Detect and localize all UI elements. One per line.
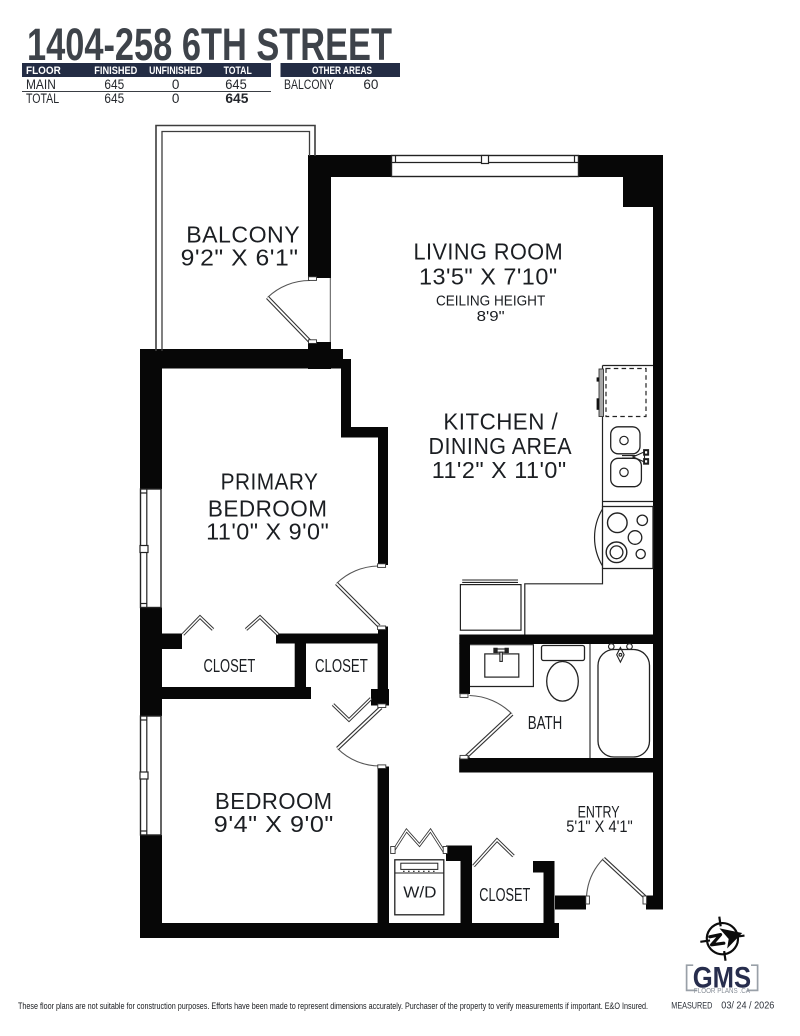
svg-text:645: 645	[104, 77, 124, 92]
svg-text:W/D: W/D	[403, 885, 436, 902]
svg-text:11'0" X 9'0": 11'0" X 9'0"	[206, 519, 329, 545]
svg-text:8'9": 8'9"	[477, 309, 505, 325]
svg-text:CLOSET: CLOSET	[315, 655, 368, 676]
svg-text:MEASURED: MEASURED	[671, 1001, 712, 1012]
svg-text:These floor plans are not suit: These floor plans are not suitable for c…	[18, 1001, 648, 1011]
svg-text:TOTAL: TOTAL	[26, 91, 59, 106]
svg-text:DINING AREA: DINING AREA	[429, 433, 573, 459]
svg-text:CEILING HEIGHT: CEILING HEIGHT	[436, 293, 545, 309]
svg-text:5'1" X 4'1": 5'1" X 4'1"	[566, 818, 633, 836]
svg-text:1404-258 6TH STREET: 1404-258 6TH STREET	[27, 19, 392, 70]
svg-text:BEDROOM: BEDROOM	[215, 788, 333, 814]
svg-text:MAIN: MAIN	[26, 77, 56, 92]
svg-text:FLOOR PLANS .CA: FLOOR PLANS .CA	[694, 986, 750, 995]
svg-text:BATH: BATH	[528, 712, 563, 733]
svg-text:645: 645	[104, 91, 124, 106]
svg-text:0: 0	[172, 91, 180, 106]
svg-text:60: 60	[363, 77, 378, 92]
svg-text:LIVING ROOM: LIVING ROOM	[414, 238, 564, 264]
svg-text:9'4" X 9'0": 9'4" X 9'0"	[214, 811, 334, 837]
svg-text:BALCONY: BALCONY	[186, 221, 300, 247]
svg-text:11'2" X 11'0": 11'2" X 11'0"	[432, 457, 567, 483]
svg-text:645: 645	[225, 91, 248, 106]
svg-text:645: 645	[225, 77, 247, 92]
svg-text:03/ 24 / 2026: 03/ 24 / 2026	[721, 1001, 774, 1012]
svg-text:TOTAL: TOTAL	[224, 65, 252, 77]
svg-text:OTHER AREAS: OTHER AREAS	[312, 65, 372, 77]
svg-text:CLOSET: CLOSET	[204, 655, 256, 676]
svg-text:FINISHED: FINISHED	[94, 65, 137, 77]
svg-text:FLOOR: FLOOR	[26, 65, 61, 77]
svg-text:13'5" X 7'10": 13'5" X 7'10"	[419, 264, 558, 290]
svg-text:PRIMARY: PRIMARY	[221, 469, 319, 495]
svg-text:UNFINISHED: UNFINISHED	[149, 65, 202, 77]
svg-text:KITCHEN /: KITCHEN /	[443, 408, 558, 434]
svg-text:CLOSET: CLOSET	[479, 885, 530, 905]
svg-text:9'2" X 6'1": 9'2" X 6'1"	[181, 245, 299, 271]
svg-text:0: 0	[172, 77, 180, 92]
svg-text:BALCONY: BALCONY	[284, 77, 334, 92]
